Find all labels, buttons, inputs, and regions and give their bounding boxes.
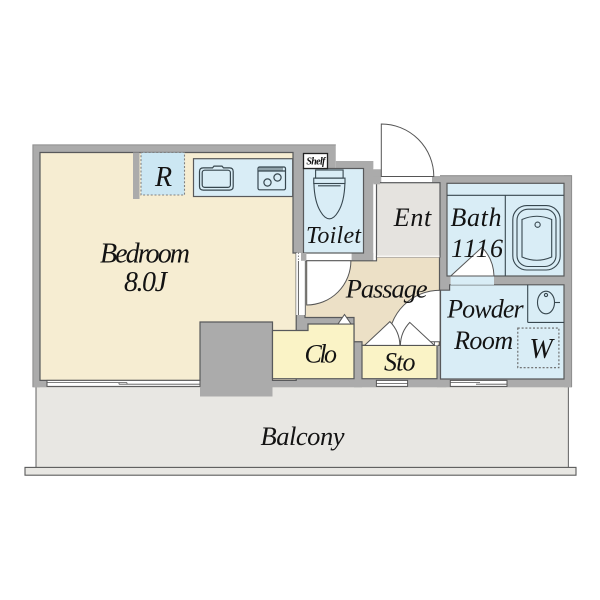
svg-text:W: W — [529, 334, 555, 365]
svg-text:Powder: Powder — [446, 295, 524, 324]
svg-text:Clo: Clo — [305, 340, 338, 369]
svg-text:Balcony: Balcony — [261, 421, 345, 451]
svg-text:Shelf: Shelf — [306, 156, 327, 167]
svg-text:Bedroom: Bedroom — [100, 239, 190, 270]
svg-text:8.0J: 8.0J — [124, 267, 169, 298]
svg-text:Toilet: Toilet — [306, 223, 362, 249]
svg-text:Room: Room — [453, 326, 513, 355]
svg-text:Ent: Ent — [393, 203, 432, 232]
svg-text:R: R — [154, 162, 172, 193]
svg-text:Bath: Bath — [451, 203, 502, 232]
svg-text:Passage: Passage — [345, 273, 428, 303]
svg-text:1116: 1116 — [451, 234, 503, 263]
svg-text:Sto: Sto — [384, 348, 416, 377]
